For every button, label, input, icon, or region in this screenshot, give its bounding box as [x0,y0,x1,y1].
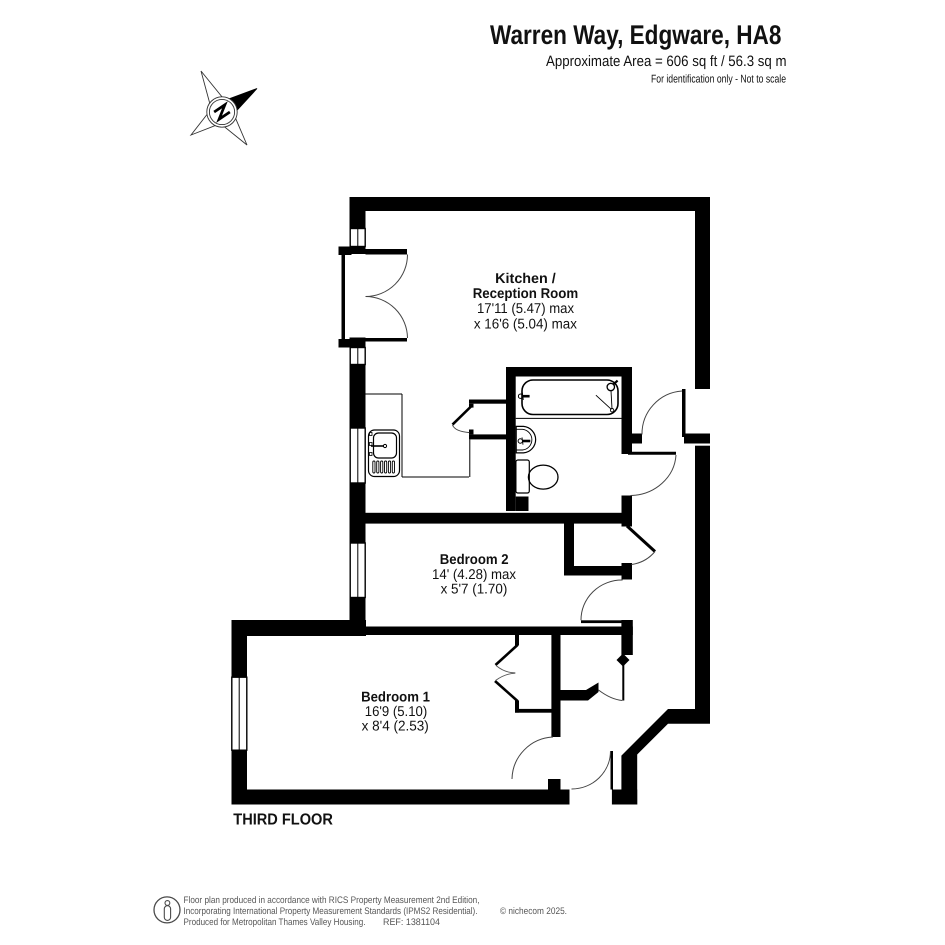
svg-text:THIRD FLOOR: THIRD FLOOR [233,811,333,828]
svg-text:Approximate Area = 606 sq ft /: Approximate Area = 606 sq ft / 56.3 sq m [546,53,787,70]
svg-text:Reception Room: Reception Room [473,286,579,302]
svg-text:Floor plan produced in accorda: Floor plan produced in accordance with R… [184,895,480,906]
svg-text:© nichecom 2025.: © nichecom 2025. [500,906,567,917]
svg-text:For identification only - Not: For identification only - Not to scale [651,74,786,86]
svg-text:x 5'7 (1.70): x 5'7 (1.70) [441,582,508,598]
svg-text:Produced for Metropolitan Tham: Produced for Metropolitan Thames Valley … [184,917,366,928]
svg-text:14' (4.28) max: 14' (4.28) max [432,567,516,583]
svg-text:x 16'6 (5.04) max: x 16'6 (5.04) max [474,316,577,332]
svg-text:Bedroom 2: Bedroom 2 [440,552,509,568]
svg-text:Incorporating International Pr: Incorporating International Property Mea… [184,906,478,917]
svg-text:REF: 1381104: REF: 1381104 [383,917,440,928]
svg-text:x 8'4 (2.53): x 8'4 (2.53) [362,719,429,735]
svg-text:Warren Way, Edgware, HA8: Warren Way, Edgware, HA8 [490,20,781,50]
svg-text:Kitchen /: Kitchen / [495,271,556,287]
svg-text:17'11 (5.47) max: 17'11 (5.47) max [477,301,574,317]
